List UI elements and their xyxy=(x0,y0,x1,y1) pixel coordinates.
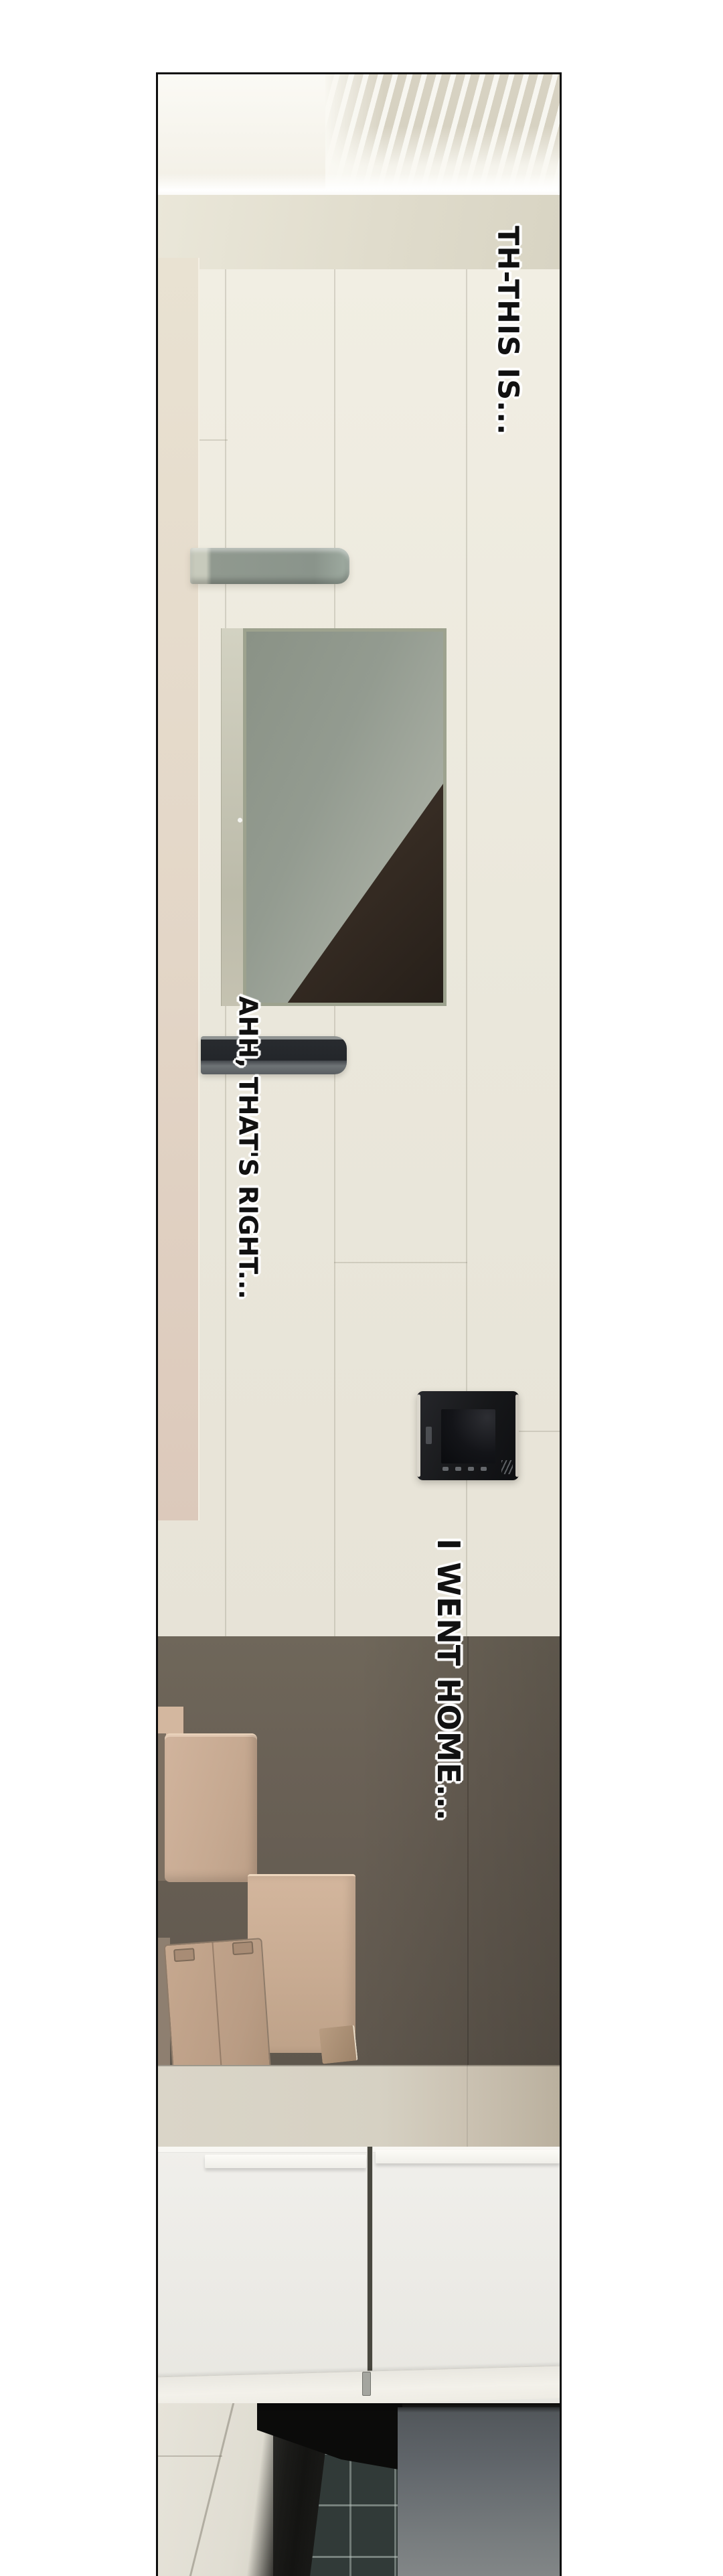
box-flap-tab xyxy=(173,1948,195,1962)
speech-text-1: TH-THIS IS... xyxy=(491,226,524,453)
mirror-dark-reflection xyxy=(246,632,443,1003)
cardboard-box xyxy=(165,1733,257,1882)
hallway-gray-wall xyxy=(398,2407,560,2576)
speech-text-3: I WENT HOME... xyxy=(430,1539,466,1833)
countertop-band xyxy=(158,2065,560,2147)
tall-cabinet-side xyxy=(158,258,199,1520)
intercom-button-icon xyxy=(468,1467,474,1471)
ceiling-vent-glow xyxy=(325,74,560,190)
tile-seam-horizontal xyxy=(199,439,228,441)
cabinet-door-gap xyxy=(367,2147,373,2403)
light-speck xyxy=(238,818,242,822)
comic-panel: TH-THIS IS... AHH, THAT'S RIGHT... I WEN… xyxy=(156,72,562,2576)
intercom-speaker-icon xyxy=(501,1460,513,1474)
cabinet-right-door-handle xyxy=(376,2150,560,2163)
intercom-button-icon xyxy=(481,1467,487,1471)
frosted-glass-shelf xyxy=(190,548,349,584)
tile-seam-horizontal xyxy=(334,1262,467,1263)
box-flap-tab xyxy=(232,1941,254,1955)
cardboard-box-tape xyxy=(319,2025,357,2064)
webtoon-page: TH-THIS IS... AHH, THAT'S RIGHT... I WEN… xyxy=(0,0,723,2576)
cabinet-hinge xyxy=(362,2372,371,2396)
intercom-left-edge xyxy=(417,1394,420,1477)
wall-mirror xyxy=(243,628,447,1006)
dark-towel-bar xyxy=(201,1036,347,1074)
intercom-right-edge xyxy=(515,1394,519,1477)
speech-text-2: AHH, THAT'S RIGHT... xyxy=(233,996,262,1317)
white-cabinet xyxy=(158,2147,560,2403)
cabinet-left-door-handle xyxy=(205,2155,366,2168)
wall-corner-line xyxy=(467,1636,469,2065)
intercom-logo xyxy=(426,1427,432,1444)
intercom-button-icon xyxy=(443,1467,449,1471)
band-seam xyxy=(467,2065,468,2147)
cabinet-under-shadow xyxy=(257,2403,560,2413)
mirror-side-bevel xyxy=(221,628,244,1006)
doorway-wall-seam xyxy=(158,2455,222,2457)
dark-doorway xyxy=(158,2403,560,2576)
intercom-button-icon xyxy=(455,1467,461,1471)
intercom-screen xyxy=(441,1409,495,1463)
video-intercom xyxy=(417,1391,519,1480)
